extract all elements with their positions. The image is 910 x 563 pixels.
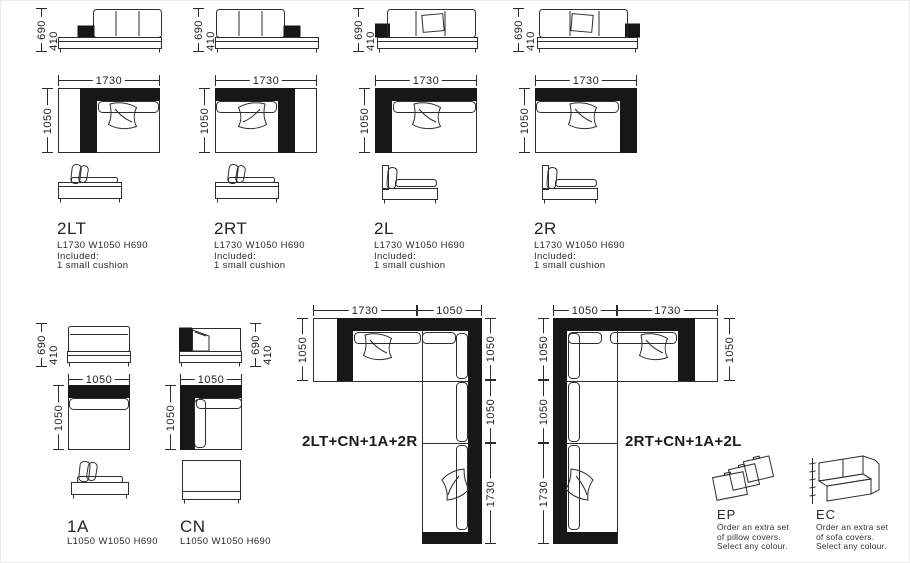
extra-code: EC	[816, 507, 836, 522]
dim-label: 1050	[538, 333, 550, 365]
combo-dim-top: 1730	[313, 305, 417, 316]
combo-dim-left: 1050	[538, 318, 549, 380]
dim-length: 1730	[58, 75, 160, 86]
elevation-drawing	[375, 5, 480, 55]
module-spec: L1730 W1050 H690	[374, 240, 465, 251]
module-2lt: 690 410 1730 1050	[30, 0, 190, 285]
combo-dim-left: 1730	[538, 443, 549, 544]
dim-length: 1730	[535, 75, 637, 86]
sofa-cover-icon	[805, 452, 889, 508]
dim-label: 410	[262, 342, 274, 368]
dim-label: 1050	[519, 104, 531, 136]
combo-plan-drawing	[313, 318, 482, 544]
dim-label: 690	[36, 17, 48, 43]
dim-label: 1050	[485, 395, 497, 427]
plan-drawing	[535, 88, 637, 153]
dim-length: 1730	[215, 75, 317, 86]
plan-drawing	[68, 385, 130, 450]
elevation-drawing	[67, 322, 131, 372]
dim-label: 1730	[410, 75, 442, 87]
module-name: 2L	[374, 219, 394, 239]
dim-label: 1050	[42, 104, 54, 136]
dim-seat-height: 410	[262, 342, 273, 367]
dim-height: 690	[193, 8, 204, 52]
combo-dim-right: 1050	[485, 318, 496, 380]
dim-height: 690	[513, 8, 524, 52]
module-spec: L1050 W1050 H690	[180, 536, 271, 547]
module-name: 2RT	[214, 219, 247, 239]
dim-label: 1730	[570, 75, 602, 87]
dim-length: 1050	[68, 374, 130, 385]
dim-label: 410	[48, 342, 60, 368]
sofa-spec-sheet: 690 410 1730 1050	[0, 0, 910, 563]
dim-label: 1050	[724, 333, 736, 365]
dim-length: 1050	[180, 374, 242, 385]
dim-label: 690	[513, 17, 525, 43]
dim-depth: 1050	[53, 385, 64, 450]
dim-length: 1730	[375, 75, 477, 86]
module-spec: L1730 W1050 H690	[57, 240, 148, 251]
combo-plan-drawing	[553, 318, 718, 544]
dim-label: 1050	[83, 374, 115, 386]
dim-label: 1050	[485, 333, 497, 365]
dim-label: 1730	[651, 305, 683, 317]
side-view-drawing	[535, 164, 601, 209]
module-name: 2LT	[57, 219, 87, 239]
module-spec: L1730 W1050 H690	[214, 240, 305, 251]
module-2l: 690 410 1730 1050	[347, 0, 507, 285]
elevation-drawing	[215, 5, 320, 55]
combo-dim-top: 1730	[617, 305, 718, 316]
module-included-item: 1 small cushion	[374, 260, 445, 271]
dim-label: 1050	[195, 374, 227, 386]
dim-depth: 1050	[199, 88, 210, 153]
extra-code: EP	[717, 507, 736, 522]
plan-drawing	[215, 88, 317, 153]
dim-label: 1050	[569, 305, 601, 317]
module-2rt: 690 410 1730 1050	[187, 0, 347, 285]
dim-label: 1050	[165, 401, 177, 433]
dim-label: 690	[353, 17, 365, 43]
extra-line: Select any colour.	[717, 542, 789, 552]
side-view-drawing	[375, 164, 441, 209]
plan-drawing	[180, 385, 242, 450]
module-included-item: 1 small cushion	[214, 260, 285, 271]
extra-description: Order an extra set of pillow covers. Sel…	[717, 523, 789, 552]
side-view-drawing	[215, 164, 281, 209]
dim-label: 1050	[53, 401, 65, 433]
dim-depth: 1050	[165, 385, 176, 450]
dim-label: 1050	[297, 333, 309, 365]
dim-label: 1050	[359, 104, 371, 136]
pillow-covers-icon	[712, 454, 776, 506]
module-2r: 690 410 1730 1050	[507, 0, 667, 285]
combo-dim-left: 1050	[297, 318, 308, 381]
side-view-drawing	[180, 460, 244, 505]
dim-label: 1730	[485, 477, 497, 509]
elevation-drawing	[179, 322, 243, 372]
dim-label: 1730	[250, 75, 282, 87]
module-cn: 690 410 1050 1050 CN L1050 W1050 H690	[150, 318, 300, 553]
dim-label: 1730	[538, 477, 550, 509]
module-name: CN	[180, 517, 206, 537]
module-spec: L1050 W1050 H690	[67, 536, 158, 547]
module-spec: L1730 W1050 H690	[534, 240, 625, 251]
combo-dim-top: 1050	[417, 305, 482, 316]
module-name: 1A	[67, 517, 89, 537]
combo-dim-left: 1050	[538, 380, 549, 443]
dim-label: 1050	[433, 305, 465, 317]
module-included-item: 1 small cushion	[57, 260, 128, 271]
dim-height: 690	[353, 8, 364, 52]
extra-description: Order an extra set of sofa covers. Selec…	[816, 523, 888, 552]
dim-label: 690	[193, 17, 205, 43]
plan-drawing	[58, 88, 160, 153]
dim-label: 1050	[199, 104, 211, 136]
plan-drawing	[375, 88, 477, 153]
combo-dim-top: 1050	[553, 305, 617, 316]
elevation-drawing	[535, 5, 640, 55]
module-included-item: 1 small cushion	[534, 260, 605, 271]
dim-label: 1050	[538, 395, 550, 427]
elevation-drawing	[58, 5, 163, 55]
dim-height: 690	[36, 8, 47, 52]
combo-dim-right: 1730	[485, 443, 496, 544]
dim-label: 1730	[93, 75, 125, 87]
combo-dim-right: 1050	[724, 318, 735, 381]
dim-depth: 1050	[519, 88, 530, 153]
extra-line: Select any colour.	[816, 542, 888, 552]
side-view-drawing	[68, 460, 132, 505]
dim-depth: 1050	[359, 88, 370, 153]
combo-title: 2RT+CN+1A+2L	[625, 433, 742, 450]
dim-depth: 1050	[42, 88, 53, 153]
combo-dim-right: 1050	[485, 380, 496, 443]
dim-label: 690	[250, 332, 262, 358]
side-view-drawing	[58, 164, 124, 209]
extras-section: EP Order an extra set of pillow covers. …	[705, 450, 905, 560]
dim-label: 690	[36, 332, 48, 358]
combo-title: 2LT+CN+1A+2R	[302, 433, 417, 450]
dim-label: 1730	[349, 305, 381, 317]
dim-height: 690	[36, 323, 47, 367]
module-name: 2R	[534, 219, 557, 239]
dim-seat-height: 410	[48, 342, 59, 367]
dim-height: 690	[250, 323, 261, 367]
combo-2lt-cn-1a-2r: 1730 1050 1050 10	[295, 300, 505, 555]
